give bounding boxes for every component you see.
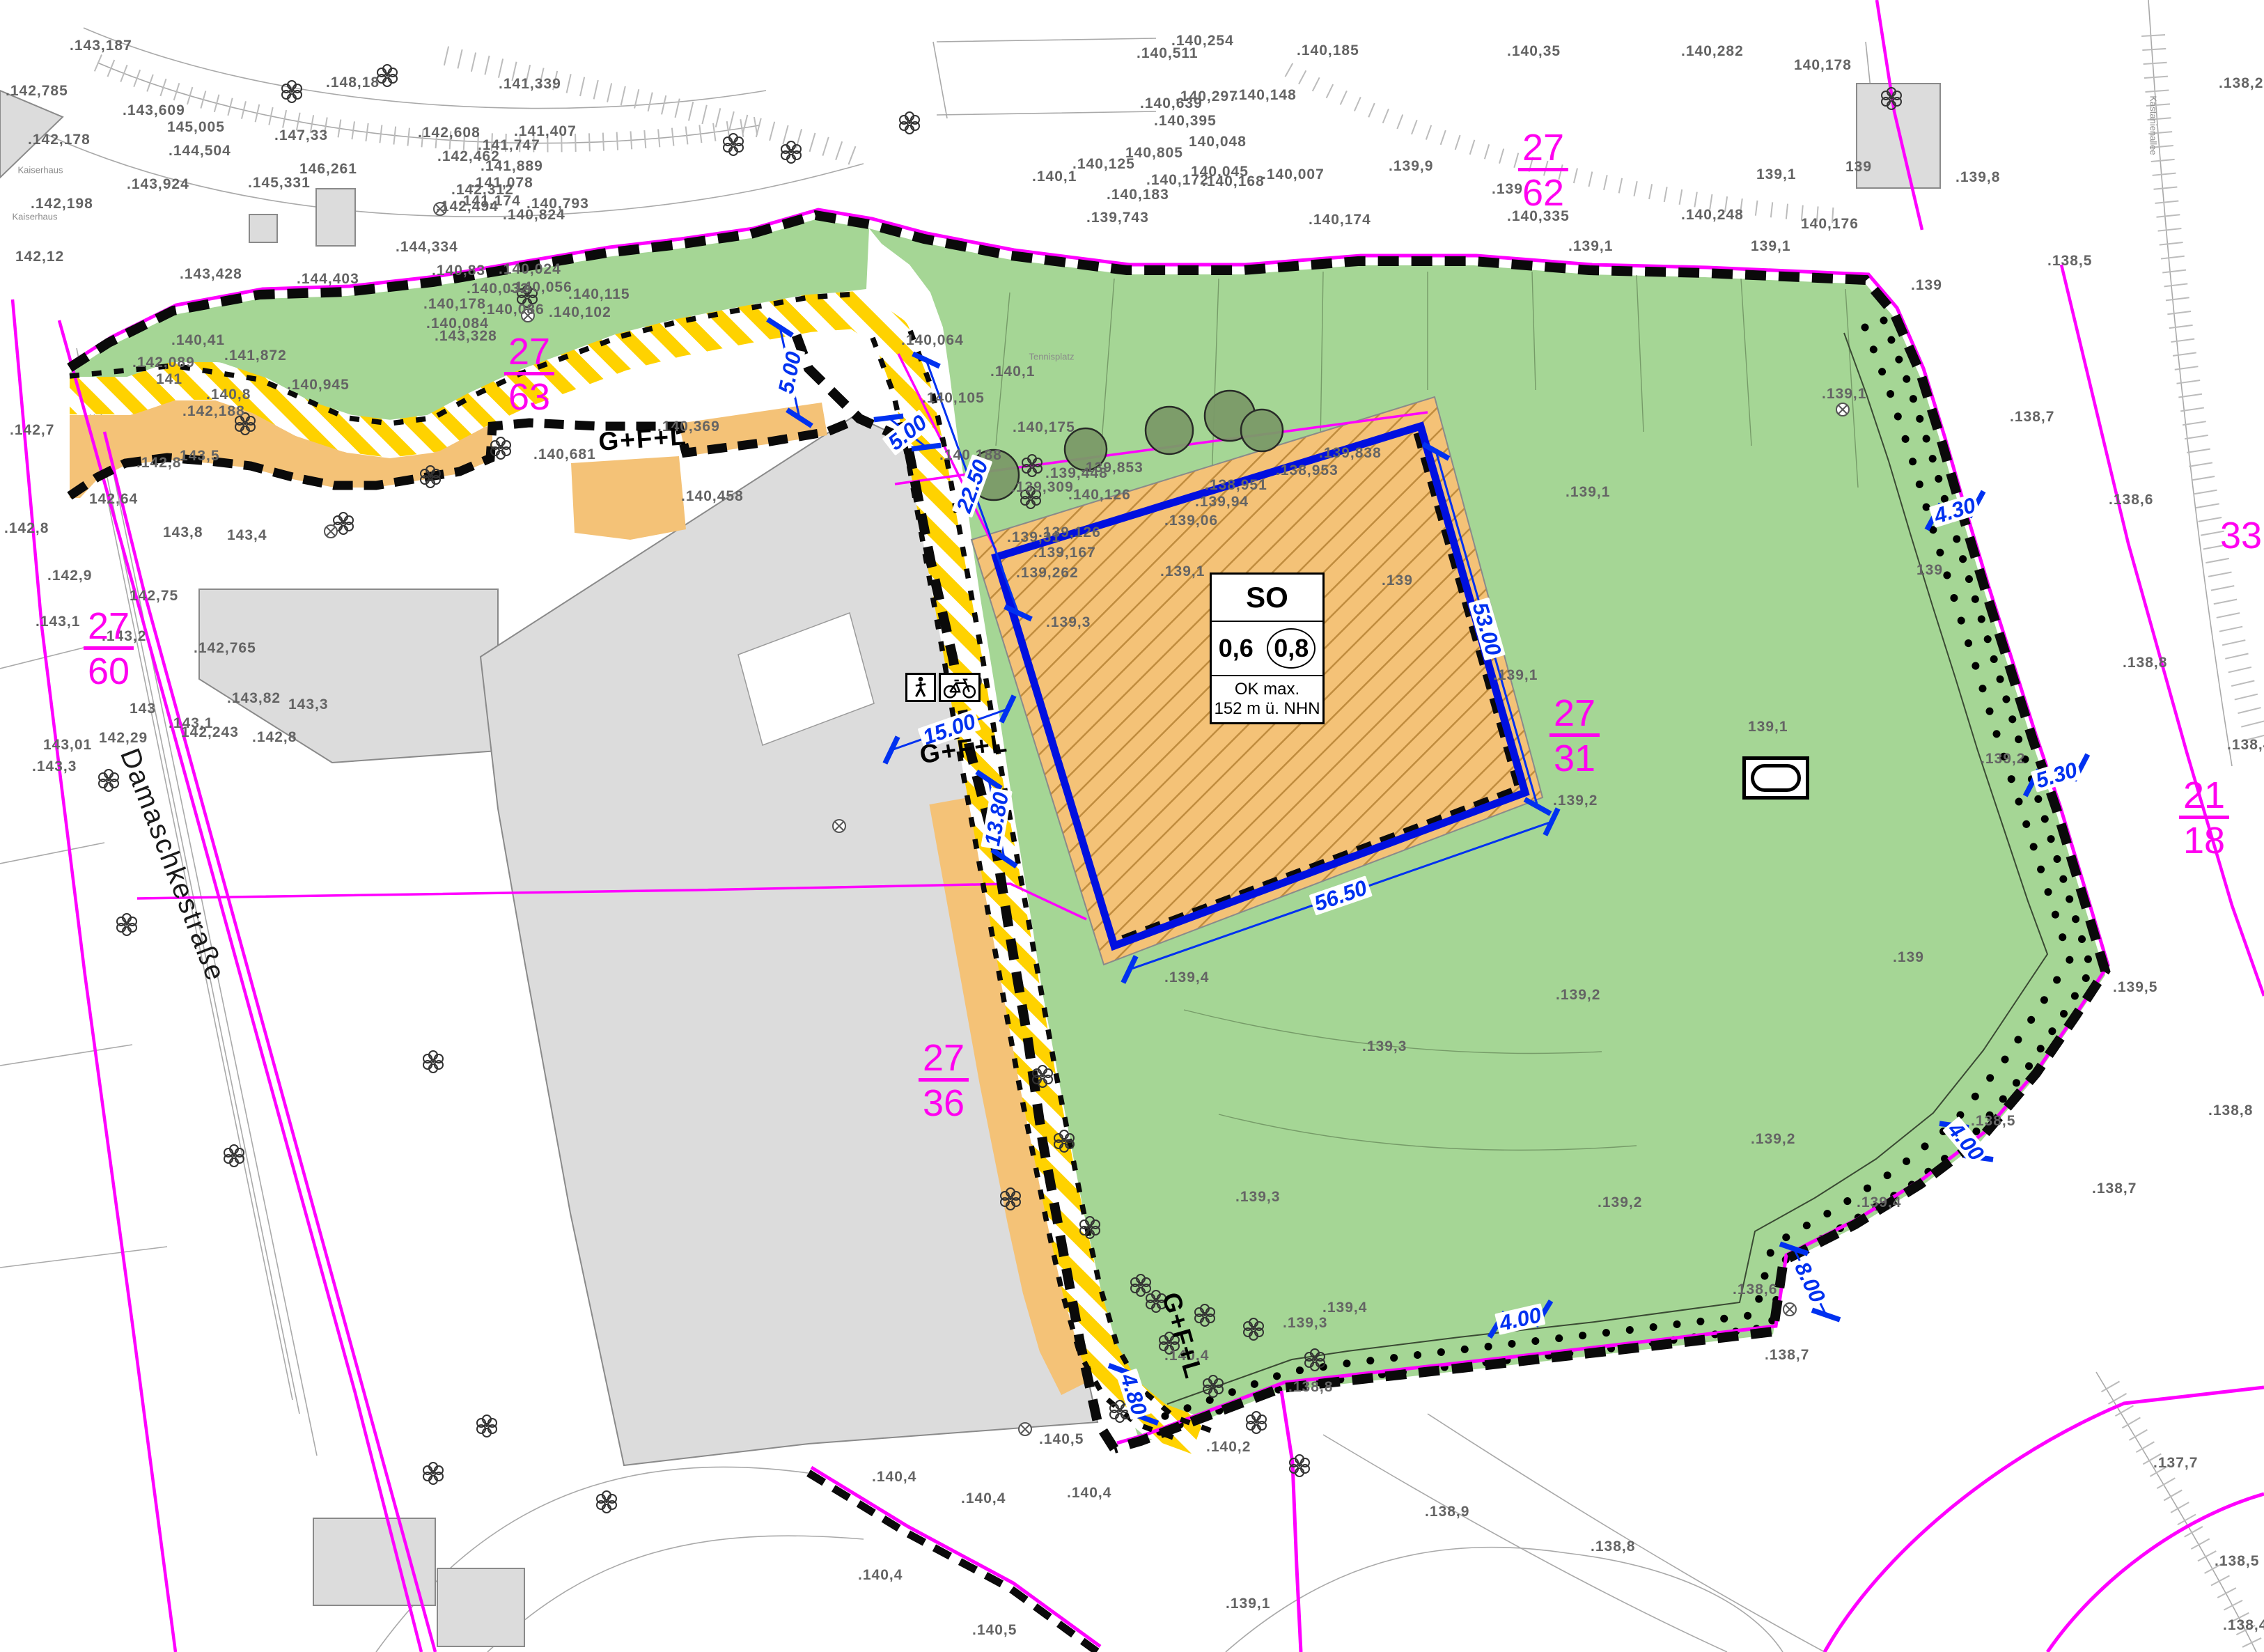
so-height-note: OK max. 152 m ü. NHN — [1212, 676, 1322, 722]
minor-label: Kaiserhaus — [17, 166, 63, 175]
parcel-denominator: 63 — [504, 375, 554, 416]
spot-elevation: .138,7 — [2010, 410, 2054, 424]
spot-elevation: 143,5 — [180, 449, 220, 463]
spot-elevation: .139,3 — [1046, 615, 1091, 630]
spot-elevation: .140,105 — [922, 391, 985, 405]
spot-elevation: 142,29 — [99, 731, 148, 745]
spot-elevation: .140,126 — [1068, 488, 1131, 502]
spot-elevation: .140,35 — [1507, 44, 1561, 59]
spot-elevation: .141,339 — [499, 77, 561, 91]
spot-elevation: .142,765 — [194, 641, 256, 655]
spot-elevation: .144,504 — [169, 143, 231, 158]
spot-elevation: .141,872 — [224, 348, 287, 363]
parcel-label: 33 — [2216, 517, 2264, 556]
spot-elevation: .139,2 — [1556, 988, 1600, 1002]
spot-elevation: .140,4 — [872, 1470, 916, 1484]
so-values: 0,6 0,8 — [1212, 622, 1322, 676]
spot-elevation: .137,7 — [2153, 1456, 2198, 1470]
parcel-number: 27 — [1518, 129, 1568, 171]
spot-elevation: .138,8 — [2208, 1103, 2253, 1118]
spot-elevation: .140,511 — [1137, 46, 1199, 61]
spot-elevation: .142,785 — [6, 84, 68, 98]
spot-elevation: .140,086 — [482, 302, 545, 317]
spot-elevation: .142,089 — [132, 355, 195, 370]
spot-elevation: .142,188 — [182, 404, 245, 419]
bicycle-icon — [939, 673, 981, 702]
so-title: SO — [1212, 575, 1322, 622]
spot-elevation: .140,8 — [206, 387, 251, 402]
parcel-denominator: 18 — [2179, 819, 2229, 859]
spot-elevation: .139,1 — [1160, 564, 1205, 579]
spot-elevation: .140,183 — [1107, 187, 1169, 202]
spot-elevation: .139,5 — [2113, 980, 2157, 995]
spot-elevation: .140,185 — [1297, 43, 1359, 58]
spot-elevation: .139,8 — [1955, 170, 2000, 185]
spot-elevation: .143,3 — [32, 759, 77, 774]
spot-elevation: .143,924 — [127, 177, 189, 192]
spot-elevation: .143,1 — [169, 716, 213, 731]
parcel-label: 2762 — [1518, 129, 1568, 212]
spot-elevation: .139,309 — [1011, 480, 1074, 494]
spot-elevation: .140,1 — [990, 364, 1035, 379]
spot-elevation: 143,3 — [288, 697, 329, 712]
spot-elevation: .140,5 — [972, 1623, 1017, 1637]
minor-label: Kastanienallee — [2149, 95, 2158, 155]
spot-elevation: .142,9 — [47, 568, 92, 583]
spot-elevation: .139,838 — [1319, 446, 1382, 460]
spot-elevation: .140,056 — [510, 280, 572, 295]
parcel-number: 33 — [2216, 517, 2264, 556]
spot-elevation: .143,428 — [180, 267, 242, 281]
spot-elevation: .142,8 — [4, 521, 49, 536]
spot-elevation: .143,82 — [227, 691, 281, 706]
parcel-number: 27 — [504, 333, 554, 375]
spot-elevation: .139,2 — [1981, 751, 2025, 766]
spot-elevation: .139,743 — [1086, 210, 1149, 225]
spot-elevation: .139,853 — [1081, 460, 1143, 475]
minor-label: Tennisplatz — [1029, 352, 1074, 361]
spot-elevation: .142,198 — [31, 196, 93, 211]
spot-elevation: 140,048 — [1189, 134, 1247, 149]
spot-elevation: .138,7 — [1765, 1348, 1809, 1362]
spot-elevation: .145,331 — [248, 176, 311, 190]
spot-elevation: .140,248 — [1681, 208, 1744, 222]
spot-elevation: .139,94 — [1195, 494, 1249, 509]
spot-elevation: .139,1 — [1822, 387, 1866, 401]
parcel-label: 2763 — [504, 333, 554, 416]
spot-elevation: .140,41 — [171, 333, 225, 348]
spot-elevation: .140,282 — [1681, 44, 1744, 59]
spot-elevation: .140,102 — [549, 305, 611, 320]
spot-elevation: .139 — [1382, 573, 1413, 588]
spot-elevation: .140,824 — [503, 208, 565, 222]
spot-elevation: .142,178 — [28, 132, 91, 147]
spot-elevation: .140,1 — [1032, 169, 1077, 184]
spot-elevation: .140,125 — [1072, 157, 1135, 171]
spot-elevation: .140,945 — [287, 377, 350, 392]
spot-elevation: .138,4 — [2227, 738, 2264, 752]
spot-elevation: 145,005 — [167, 120, 225, 134]
spot-elevation: .139 — [1893, 950, 1924, 965]
spot-elevation: .139,1 — [1226, 1596, 1270, 1611]
parcel-denominator: 36 — [919, 1082, 969, 1122]
spot-elevation: .138,9 — [1425, 1504, 1469, 1519]
gfz-value-circled: 0,8 — [1267, 628, 1316, 669]
spot-elevation: .138,8 — [1591, 1539, 1635, 1554]
spot-elevation: .142,7 — [10, 423, 54, 437]
spot-elevation: .139,262 — [1016, 566, 1079, 580]
spot-elevation: .140,148 — [1234, 88, 1297, 102]
parcel-number: 27 — [84, 607, 134, 650]
spot-elevation: .140,064 — [901, 333, 964, 348]
parcel-label: 2736 — [919, 1039, 969, 1122]
spot-elevation: .139,3 — [1283, 1316, 1327, 1330]
spot-elevation: .141,889 — [481, 159, 543, 173]
spot-elevation: .140,175 — [1013, 420, 1075, 435]
spot-elevation: 142,12 — [15, 249, 64, 264]
spot-elevation: .139,9 — [1389, 159, 1433, 173]
spot-elevation: .138,6 — [1733, 1282, 1777, 1297]
spot-elevation: .139,167 — [1033, 545, 1096, 560]
spot-elevation: .142,8 — [136, 455, 181, 470]
spot-elevation: .138,6 — [2109, 492, 2153, 507]
spot-elevation: .142,8 — [252, 730, 297, 745]
spot-elevation: .139,2 — [1751, 1132, 1795, 1146]
spot-elevation: .138,8 — [2123, 655, 2167, 670]
spot-elevation: .140,458 — [681, 489, 744, 504]
spot-elevation: .140,115 — [568, 287, 630, 302]
pedestrian-icon — [905, 673, 936, 702]
spot-elevation: .140,007 — [1262, 167, 1325, 182]
spot-elevation: 142,75 — [130, 589, 178, 603]
spot-elevation: .138,7 — [2092, 1181, 2137, 1196]
spot-elevation: .140,172 — [1146, 173, 1209, 187]
spot-elevation: 139,1 — [1756, 167, 1797, 182]
spot-elevation: .139,4 — [1857, 1195, 1901, 1210]
parcel-number: 27 — [1549, 694, 1600, 737]
spot-elevation: .139,126 — [1038, 525, 1101, 540]
spot-elevation: .142,608 — [418, 125, 481, 140]
spot-elevation: .139,1 — [1568, 239, 1613, 254]
spot-elevation: 143 — [130, 701, 156, 716]
spot-elevation: 139 — [1916, 563, 1943, 577]
parcel-number: 21 — [2179, 777, 2229, 819]
spot-elevation: 140,178 — [1794, 58, 1852, 72]
spot-elevation: 140,176 — [1801, 217, 1859, 231]
spot-elevation: .140,5 — [1039, 1432, 1084, 1447]
spot-elevation: .138,4 — [2223, 1618, 2264, 1632]
parcel-label: 2760 — [84, 607, 134, 690]
grz-value: 0,6 — [1219, 634, 1254, 663]
sports-field-icon — [1742, 756, 1809, 800]
spot-elevation: .141,078 — [471, 176, 533, 190]
spot-elevation: 146,261 — [299, 162, 357, 176]
spot-elevation: 143,4 — [227, 528, 267, 543]
spot-elevation: .143,1 — [36, 614, 80, 629]
spot-elevation: .144,403 — [297, 272, 359, 286]
spot-elevation: 143,8 — [163, 525, 203, 540]
spot-elevation: .139,4 — [1322, 1300, 1367, 1315]
spot-elevation: .147,33 — [274, 128, 328, 143]
parcel-denominator: 60 — [84, 650, 134, 690]
spot-elevation: .138,5 — [1971, 1114, 2015, 1128]
spot-elevation: .140,681 — [533, 447, 596, 462]
spot-elevation: .140,168 — [1202, 174, 1265, 189]
parcel-label: 2731 — [1549, 694, 1600, 777]
parcel-label: 2118 — [2179, 777, 2229, 859]
spot-elevation: .140,2 — [1206, 1440, 1251, 1454]
spot-elevation: 142,64 — [89, 492, 138, 506]
spot-elevation: .139,1 — [1493, 668, 1538, 683]
minor-label: Kaiserhaus — [12, 212, 57, 221]
spot-elevation: .138,5 — [2047, 254, 2092, 268]
zoning-plan-canvas: SO 0,6 0,8 OK max. 152 m ü. NHN .143,187… — [0, 0, 2264, 1652]
spot-elevation: .138,953 — [1276, 463, 1338, 478]
spot-elevation: .141,407 — [514, 124, 577, 139]
spot-elevation: .140,084 — [426, 316, 489, 331]
path-use-label: G+F+L — [598, 423, 687, 455]
so-legend-box: SO 0,6 0,8 OK max. 152 m ü. NHN — [1210, 572, 1325, 724]
spot-elevation: .139,2 — [1598, 1195, 1642, 1210]
spot-elevation: .139,06 — [1164, 513, 1218, 528]
parcel-number: 27 — [919, 1039, 969, 1082]
spot-elevation: 139,1 — [1748, 719, 1788, 734]
spot-elevation: .139,1 — [1566, 485, 1610, 499]
spot-elevation: .140,4 — [961, 1491, 1006, 1506]
spot-elevation: 141 — [156, 372, 182, 387]
spot-elevation: .140,639 — [1140, 96, 1203, 111]
spot-elevation: .140,024 — [499, 262, 561, 276]
spot-elevation: .140,83 — [432, 263, 485, 278]
spot-elevation: .139,3 — [1362, 1039, 1407, 1054]
spot-elevation: 143,01 — [43, 738, 92, 752]
spot-elevation: .140,174 — [1309, 212, 1371, 227]
parcel-denominator: 31 — [1549, 737, 1600, 777]
spot-elevation: .141,174 — [458, 194, 521, 208]
spot-elevation: .138,8 — [1288, 1380, 1333, 1394]
spot-elevation: .138,5 — [2215, 1554, 2259, 1568]
spot-elevation: 139,1 — [1751, 239, 1791, 254]
spot-elevation: .139,2 — [1553, 793, 1598, 808]
spot-elevation: .138,951 — [1205, 478, 1267, 492]
spot-elevation: .139 — [1911, 278, 1942, 293]
spot-elevation: .139,3 — [1235, 1190, 1280, 1204]
spot-elevation: .139,4 — [1164, 970, 1209, 985]
spot-elevation: .138,2 — [2219, 76, 2263, 91]
spot-elevation: .143,187 — [70, 38, 132, 53]
spot-elevation: .141,747 — [478, 138, 540, 153]
spot-elevation: .140,178 — [423, 297, 486, 311]
spot-elevation: .148,18 — [326, 75, 380, 90]
spot-elevation: .140,4 — [1067, 1486, 1111, 1500]
spot-elevation: .140,395 — [1154, 114, 1217, 128]
spot-elevation: .143,609 — [123, 103, 185, 118]
spot-elevation: 139 — [1845, 159, 1872, 174]
parcel-denominator: 62 — [1518, 171, 1568, 212]
spot-elevation: .140,4 — [858, 1568, 903, 1582]
spot-elevation: .144,334 — [396, 240, 458, 254]
